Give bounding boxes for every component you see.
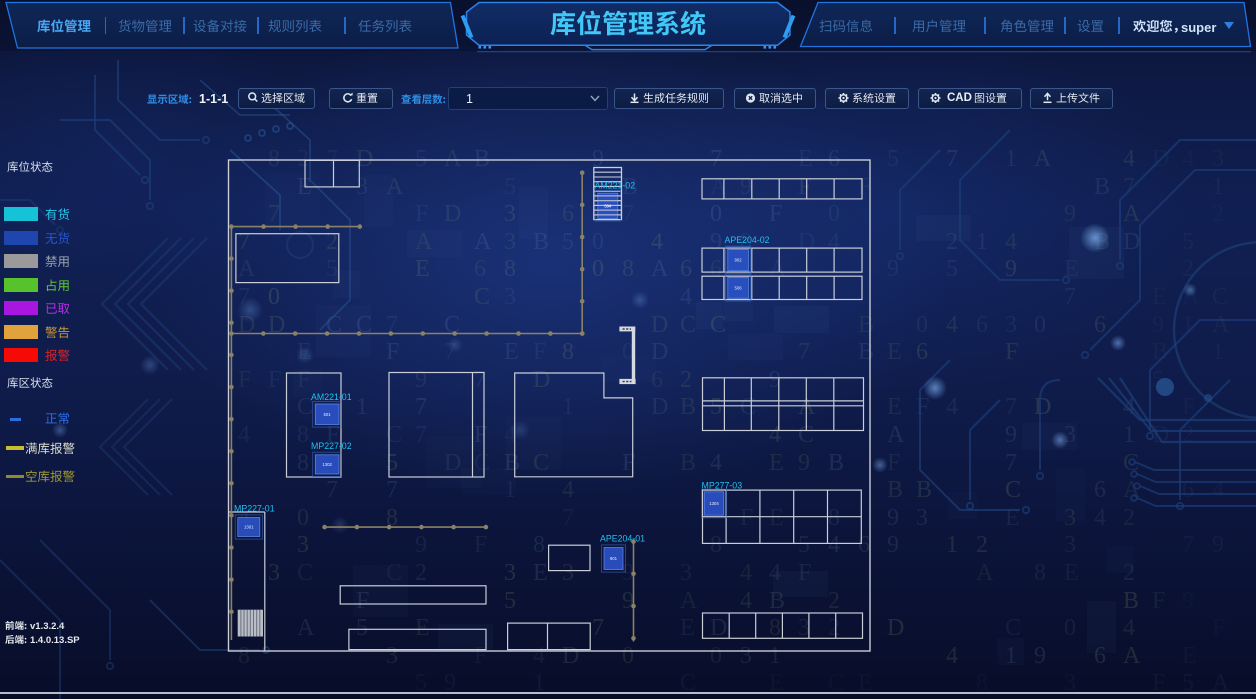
svg-text:501: 501 (324, 412, 332, 417)
svg-text:AM221-01: AM221-01 (311, 392, 352, 402)
svg-text:902: 902 (735, 258, 743, 263)
svg-text:901: 901 (610, 556, 618, 561)
svg-text:1302: 1302 (322, 462, 332, 467)
svg-text:504: 504 (604, 204, 612, 209)
svg-text:MP227-01: MP227-01 (234, 504, 275, 514)
svg-text:506: 506 (735, 286, 743, 291)
svg-text:1301: 1301 (244, 525, 254, 530)
svg-text:1304: 1304 (709, 501, 719, 506)
svg-text:AM221-02: AM221-02 (595, 181, 636, 191)
svg-text:MP227-02: MP227-02 (311, 441, 352, 451)
svg-text:APE204-01: APE204-01 (600, 534, 645, 544)
svg-text:APE204-02: APE204-02 (725, 235, 770, 245)
